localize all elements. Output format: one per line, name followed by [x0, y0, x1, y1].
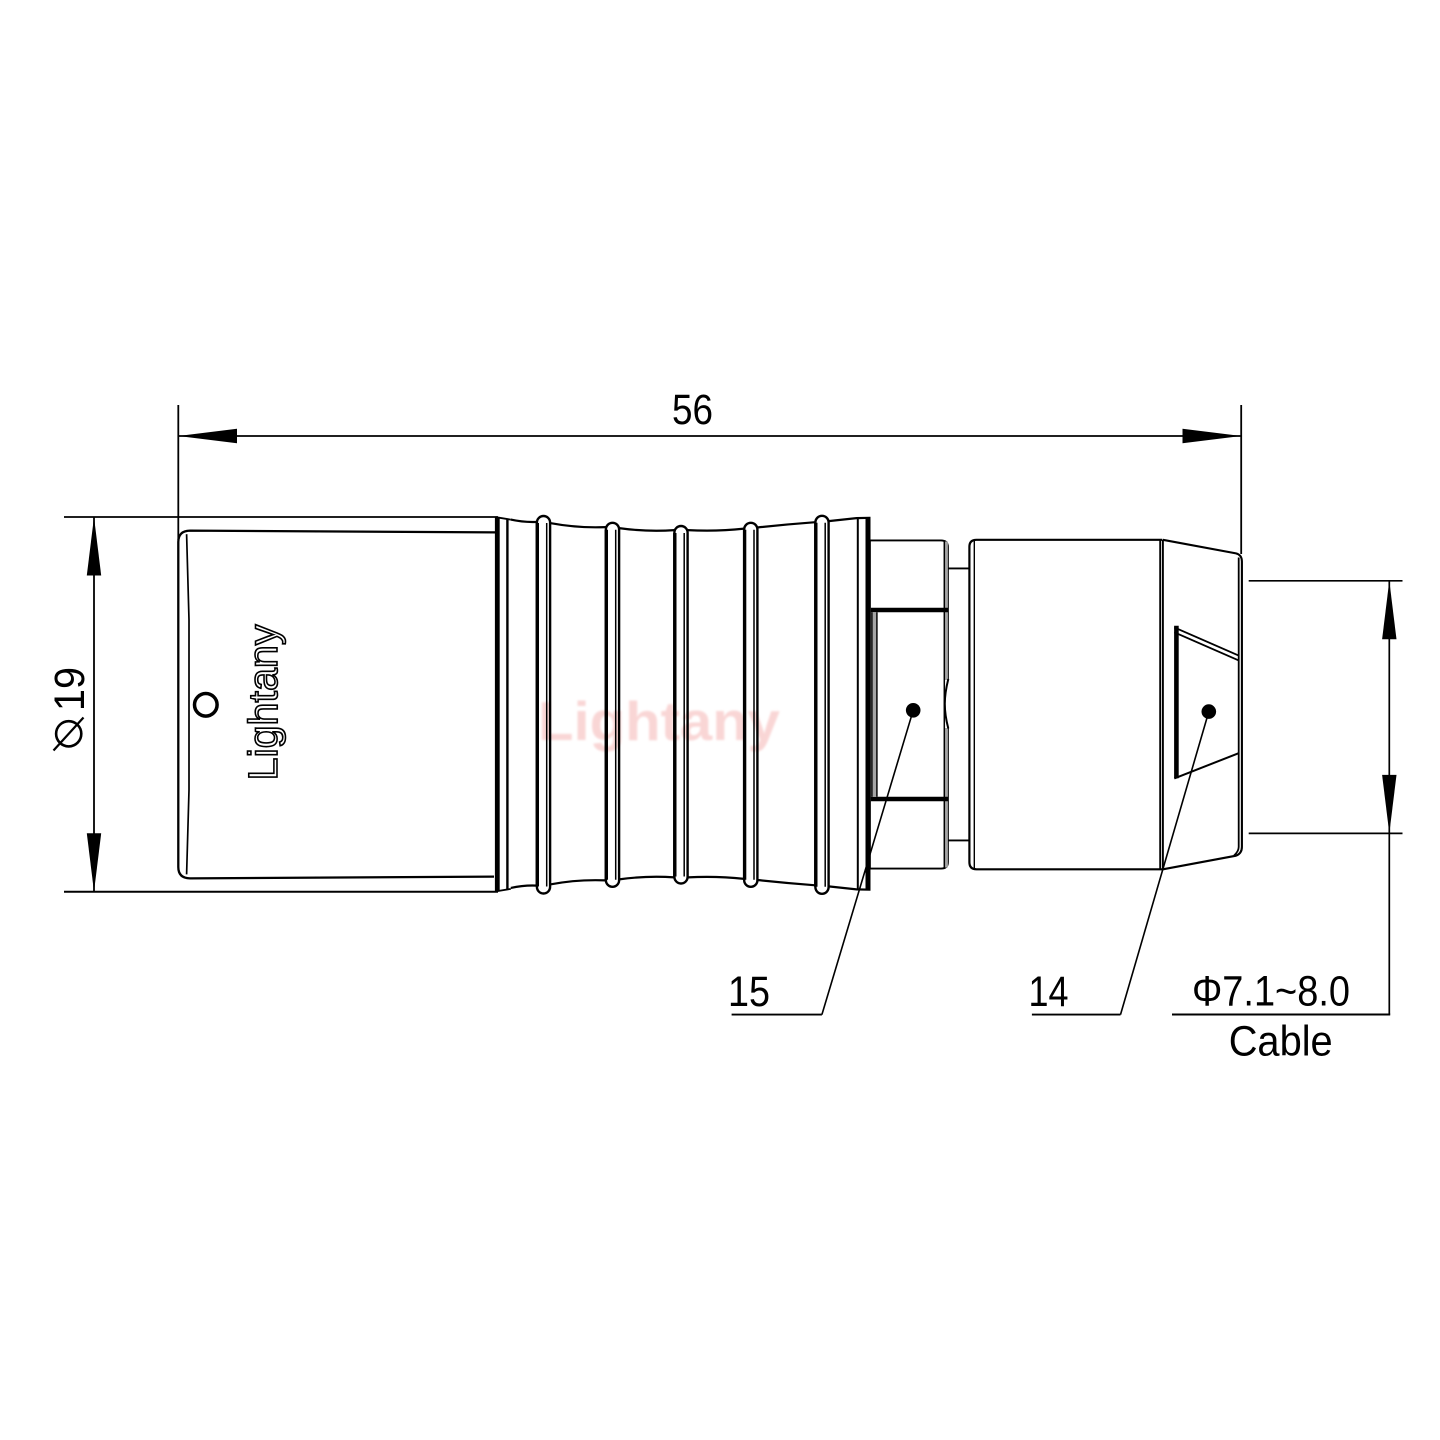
svg-text:Cable: Cable	[1229, 1017, 1333, 1065]
svg-text:Lightany: Lightany	[240, 624, 286, 781]
svg-text:15: 15	[728, 968, 770, 1016]
svg-text:56: 56	[672, 386, 713, 434]
svg-text:Φ7.1~8.0: Φ7.1~8.0	[1192, 968, 1350, 1016]
svg-text:14: 14	[1029, 968, 1069, 1016]
svg-text:19: 19	[46, 667, 94, 711]
